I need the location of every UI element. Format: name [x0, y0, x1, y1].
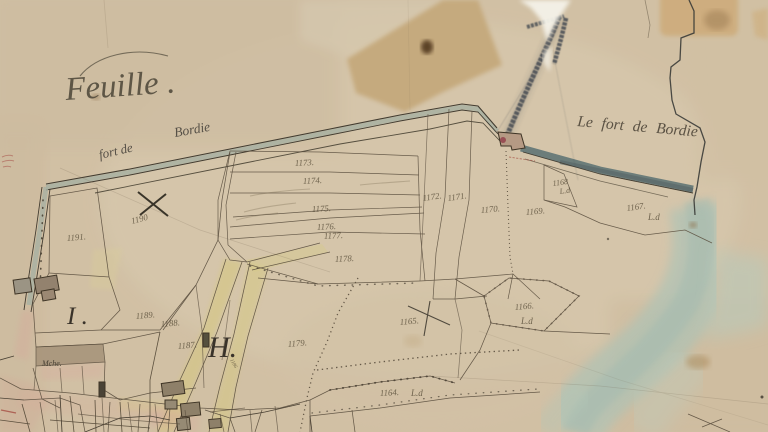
svg-text:1174.: 1174.: [303, 175, 323, 186]
svg-text:1179.: 1179.: [287, 337, 307, 349]
svg-text:I .: I .: [66, 303, 88, 330]
svg-text:1165.: 1165.: [399, 315, 419, 327]
svg-text:1191.: 1191.: [66, 231, 86, 243]
svg-text:L.d: L.d: [410, 388, 423, 398]
svg-text:1188.: 1188.: [160, 317, 180, 329]
svg-text:1164.: 1164.: [380, 387, 400, 398]
svg-text:1169.: 1169.: [525, 205, 545, 217]
svg-text:1175.: 1175.: [312, 203, 332, 214]
svg-text:1178.: 1178.: [335, 253, 355, 264]
svg-text:L.d: L.d: [558, 185, 572, 196]
svg-text:1189.: 1189.: [135, 309, 155, 321]
svg-text:1187.: 1187.: [177, 339, 197, 351]
svg-text:L.d: L.d: [520, 316, 533, 326]
svg-text:Mche.: Mche.: [41, 359, 62, 368]
svg-text:1170.: 1170.: [480, 203, 500, 215]
svg-text:L.d: L.d: [647, 212, 660, 222]
svg-text:1173.: 1173.: [295, 157, 315, 168]
svg-text:1177.: 1177.: [324, 230, 344, 241]
svg-text:1166.: 1166.: [514, 300, 534, 312]
